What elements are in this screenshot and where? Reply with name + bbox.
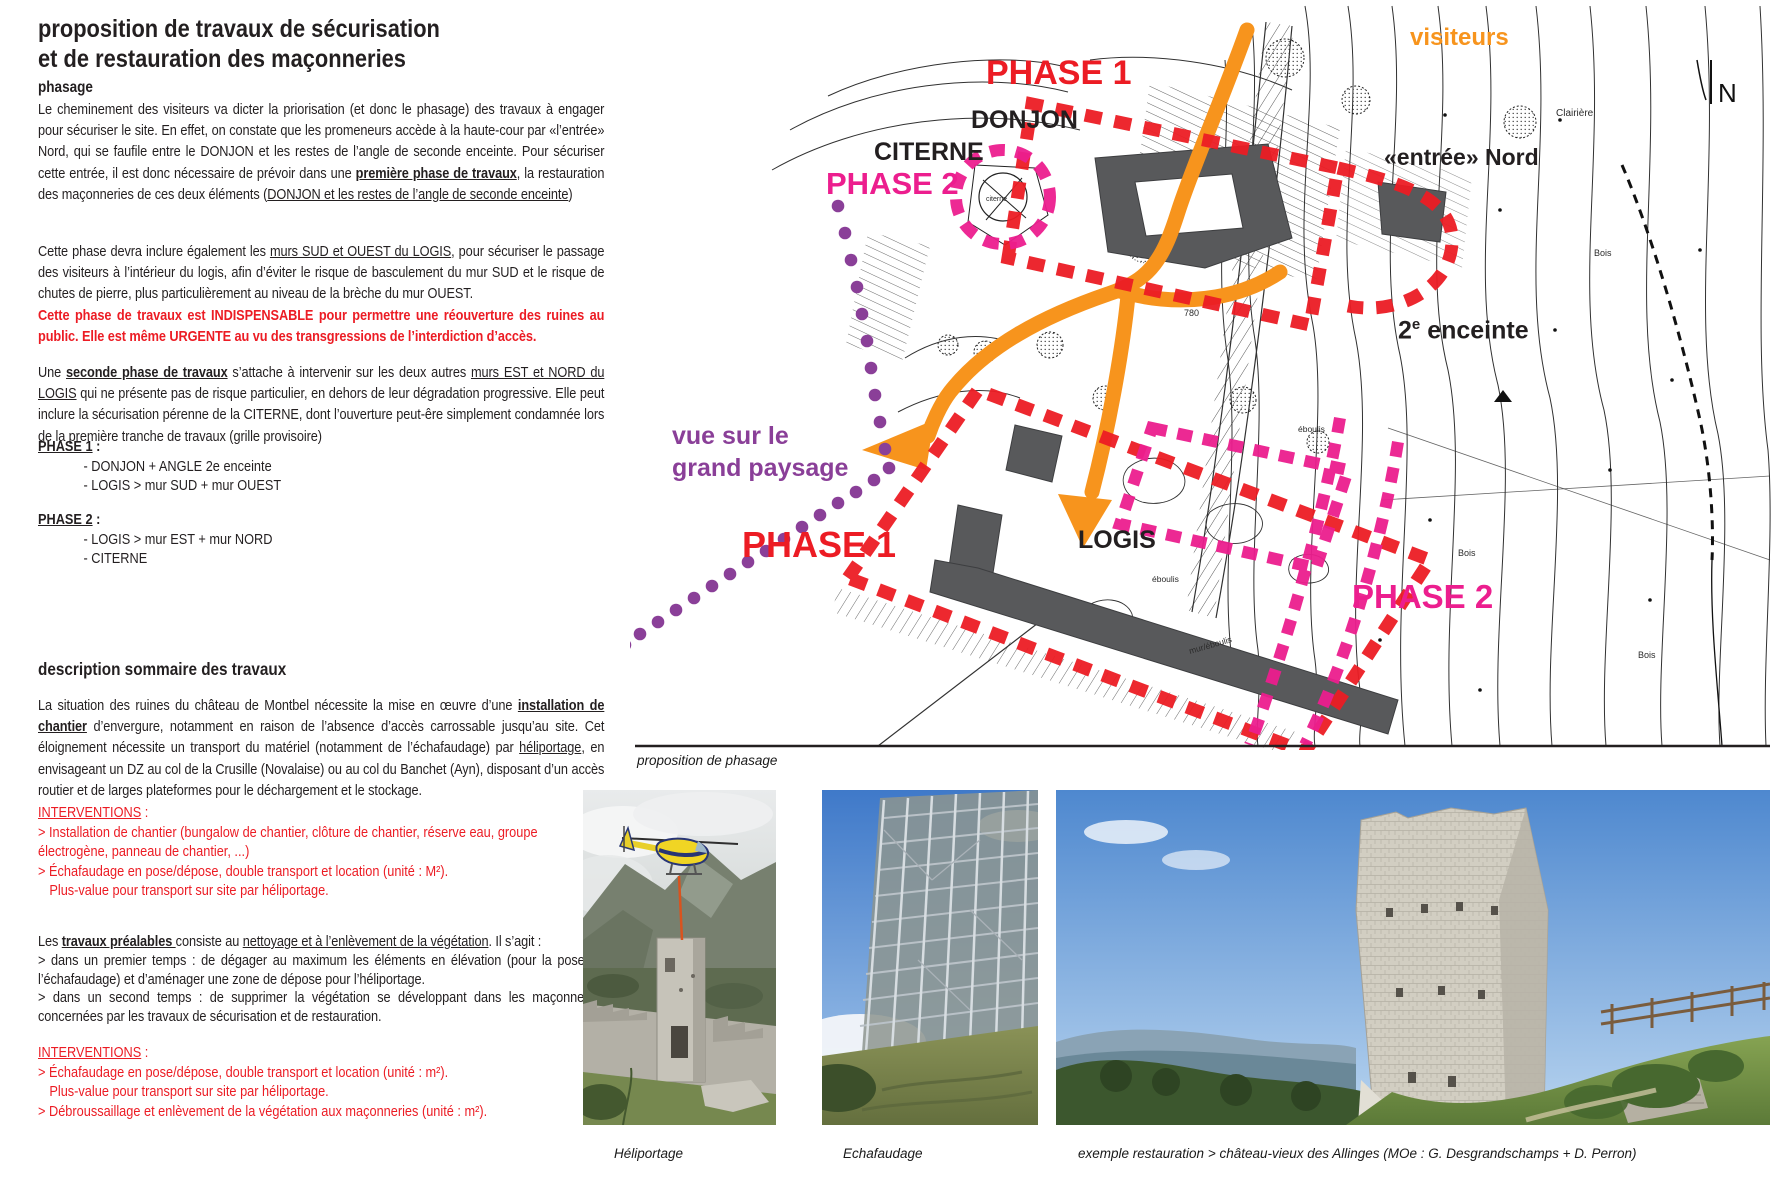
section-heading-phasage: phasage (38, 79, 93, 97)
interventions-block-2: INTERVENTIONS : > Échafaudage en pose/dé… (38, 1044, 604, 1122)
map-label-citerne: CITERNE (874, 138, 984, 167)
photo-heliportage-image (583, 790, 776, 1125)
label-780: 780 (1184, 308, 1199, 318)
map-label-vue-grand-paysage: vue sur le grand paysage (672, 420, 848, 484)
photo-restauration-image (1056, 790, 1770, 1125)
map-label-logis: LOGIS (1078, 526, 1156, 555)
photo-echafaudage-image (822, 790, 1038, 1125)
phase2-item: - LOGIS > mur EST + mur NORD (83, 531, 604, 551)
photo-caption-echafaudage: Echafaudage (843, 1146, 923, 1161)
photo-echafaudage (822, 790, 1038, 1125)
paragraph-phasage-1: Le cheminement des visiteurs va dicter l… (38, 100, 604, 206)
map-label-2e-enceinte: 2e enceinte (1398, 316, 1529, 345)
photo-restauration-allinges (1056, 790, 1770, 1125)
paragraph-text: > dans un second temps : de supprimer la… (38, 989, 604, 1027)
section-heading-description: description sommaire des travaux (38, 659, 286, 680)
paragraph-text: Cette phase devra inclure également les … (38, 242, 604, 306)
label-text: 2 (1398, 316, 1412, 344)
interventions-heading: INTERVENTIONS : (38, 1044, 604, 1064)
paragraph-urgent-red: Cette phase de travaux est INDISPENSABLE… (38, 306, 604, 348)
label-eboulis: éboulis (1298, 424, 1325, 434)
paragraph-travaux-prealables: Les travaux préalables consiste au netto… (38, 933, 604, 1027)
label-bois: Bois (1594, 248, 1612, 258)
paragraph-text: Les travaux préalables consiste au netto… (38, 933, 604, 952)
map-label-phase1-top: PHASE 1 (986, 54, 1132, 93)
paragraph-text: Le cheminement des visiteurs va dicter l… (38, 100, 604, 206)
entrance-structure (1378, 182, 1446, 242)
scaffolding-structure (858, 790, 1038, 1052)
interventions-item: > Débroussaillage et enlèvement de la vé… (38, 1103, 604, 1123)
page-title-line2: et de restauration des maçonneries (38, 44, 440, 74)
phase2-list-heading: PHASE 2 : (38, 511, 604, 531)
label-text: enceinte (1420, 316, 1528, 344)
map-label-phase2-left: PHASE 2 (826, 166, 959, 202)
paragraph-text: La situation des ruines du château de Mo… (38, 696, 604, 802)
photo-caption-heliportage: Héliportage (614, 1146, 683, 1161)
label-bois: Bois (1458, 548, 1476, 558)
interventions-item: > Échafaudage en pose/dépose, double tra… (38, 863, 604, 883)
phase1-item: - LOGIS > mur SUD + mur OUEST (83, 477, 604, 497)
paragraph-text: Une seconde phase de travaux s’attache à… (38, 363, 604, 448)
logis-wall-small (1006, 425, 1062, 482)
interventions-item: > Échafaudage en pose/dépose, double tra… (38, 1064, 604, 1084)
phase2-list: PHASE 2 : - LOGIS > mur EST + mur NORD -… (38, 511, 604, 570)
left-column: proposition de travaux de sécurisation e… (38, 0, 604, 1181)
site-plan-map: Clairière Bois Bois Bois 780 éboulis ébo… (630, 0, 1772, 750)
label-clairiere: Clairière (1556, 108, 1594, 119)
ruin-tower (1356, 808, 1548, 1125)
interventions-item: Plus-value pour transport sur site par h… (38, 1083, 604, 1103)
paragraph-description-1: La situation des ruines du château de Mo… (38, 696, 604, 802)
page-title-line1: proposition de travaux de sécurisation (38, 14, 440, 44)
map-label-entree-nord: «entrée» Nord (1384, 144, 1539, 171)
paragraph-phasage-2: Cette phase devra inclure également les … (38, 242, 604, 348)
phase2-item: - CITERNE (83, 550, 604, 570)
phase1-list-heading: PHASE 1 : (38, 438, 604, 458)
map-label-phase1-bottom: PHASE 1 (742, 524, 896, 566)
interventions-block-1: INTERVENTIONS : > Installation de chanti… (38, 804, 604, 902)
photo-heliportage (583, 790, 776, 1125)
phase1-list: PHASE 1 : - DONJON + ANGLE 2e enceinte -… (38, 438, 604, 497)
label-line: vue sur le (672, 420, 848, 452)
map-label-phase2-right: PHASE 2 (1352, 578, 1493, 616)
interventions-heading: INTERVENTIONS : (38, 804, 604, 824)
page-title: proposition de travaux de sécurisation e… (38, 14, 440, 74)
label-bois: Bois (1638, 650, 1656, 660)
label-eboulis: éboulis (1152, 574, 1179, 584)
interventions-item: > Installation de chantier (bungalow de … (38, 824, 604, 863)
label-sup: e (1412, 316, 1420, 333)
arrow-left-icon (862, 420, 934, 470)
interventions-item: Plus-value pour transport sur site par h… (38, 882, 604, 902)
label-citerne-small: citerne (986, 196, 1007, 203)
north-icon: N (1718, 78, 1737, 108)
map-label-donjon: DONJON (971, 106, 1078, 135)
label-line: grand paysage (672, 452, 848, 484)
north-indicator: N (1697, 60, 1737, 108)
map-label-visiteurs: visiteurs (1410, 24, 1509, 52)
paragraph-phasage-3: Une seconde phase de travaux s’attache à… (38, 363, 604, 448)
map-caption: proposition de phasage (637, 753, 777, 768)
document-page: proposition de travaux de sécurisation e… (0, 0, 1772, 1181)
photo-caption-restauration: exemple restauration > château-vieux des… (1078, 1146, 1637, 1161)
paragraph-text: > dans un premier temps : de dégager au … (38, 952, 604, 990)
phase1-item: - DONJON + ANGLE 2e enceinte (83, 458, 604, 478)
